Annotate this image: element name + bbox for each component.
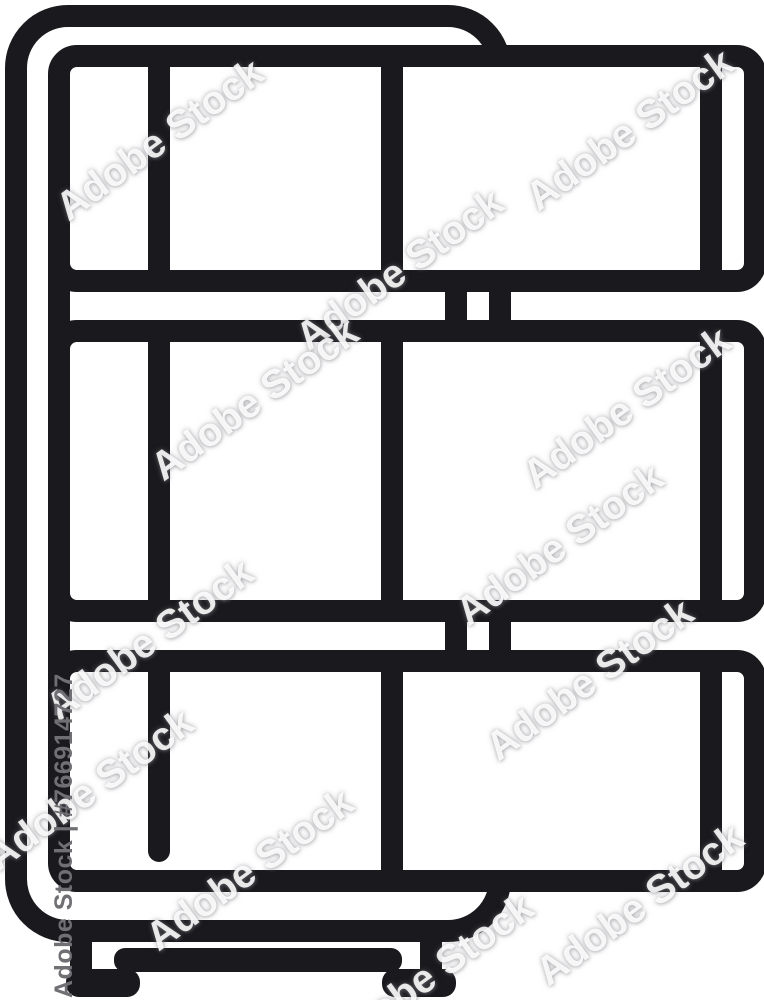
foot-pad-right bbox=[382, 969, 456, 997]
stock-image-canvas: Adobe StockAdobe StockAdobe StockAdobe S… bbox=[0, 0, 764, 1000]
stock-id-label: Adobe Stock | #766914727 bbox=[50, 673, 79, 998]
cabinet-structure bbox=[16, 16, 755, 931]
shelf-cabinet-icon bbox=[0, 0, 764, 1000]
foot-leg-right bbox=[420, 924, 442, 974]
feet-base-bar bbox=[114, 948, 402, 972]
